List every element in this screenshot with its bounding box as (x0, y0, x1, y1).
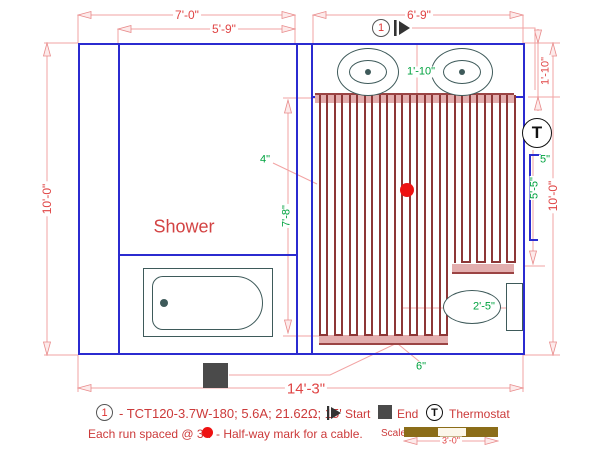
wall-partition-outer (296, 43, 298, 355)
legend-thermostat-label: Thermostat (449, 408, 510, 420)
cable-run (364, 95, 366, 336)
note-edge-gap: 4" (259, 155, 271, 166)
cable-run (491, 95, 493, 263)
wall-top (78, 43, 525, 45)
scale-bar-segment (466, 428, 497, 436)
sink-left-drain (365, 69, 371, 75)
cable-run (499, 95, 501, 263)
legend-halfway-dot-icon (202, 427, 213, 438)
wall-shower-left (118, 43, 120, 355)
wall-right (523, 43, 525, 355)
circuit-number-marker: 1 (372, 19, 390, 37)
bathtub-drain (160, 299, 168, 307)
cable-run (386, 95, 388, 336)
cable-run (506, 95, 508, 263)
thermostat-marker: T (522, 118, 552, 148)
note-bottom-gap: 6" (415, 362, 427, 373)
dim-right-top: 1'-10" (541, 55, 552, 87)
cable-run (379, 95, 381, 336)
wall-partition-inner (311, 43, 313, 355)
cable-run (319, 95, 321, 336)
legend-start-icon (327, 406, 342, 420)
scale-bar-segment (405, 428, 438, 436)
cable-run (469, 95, 471, 263)
note-right-edge-gap: 5" (539, 155, 551, 166)
cable-run (439, 95, 441, 336)
cable-run (454, 95, 456, 263)
cable-run (484, 95, 486, 263)
cable-run (476, 95, 478, 263)
cable-run (409, 95, 411, 336)
cable-run (461, 95, 463, 263)
note-toilet-clearance: 2'-5" (472, 302, 496, 313)
legend-spec: - TCT120-3.7W-180; 5.6A; 21.62Ω; 15' (119, 407, 342, 420)
cable-run (349, 95, 351, 336)
circuit-number: 1 (378, 22, 384, 34)
sink-right-drain (459, 69, 465, 75)
room-label-shower: Shower (153, 217, 214, 238)
legend-circuit-marker: 1 (96, 404, 113, 421)
thermostat-letter: T (532, 123, 542, 143)
dim-bottom: 14'-3" (285, 382, 327, 397)
cable-run (431, 95, 433, 336)
legend-thermostat-icon: T (426, 404, 443, 421)
wall-shower-divider (118, 254, 298, 256)
halfway-mark-dot (400, 183, 414, 197)
legend-spacing-note: Each run spaced @ 3". (88, 428, 211, 440)
dim-top-right: 6'-9" (405, 9, 433, 21)
cable-run (416, 95, 418, 336)
cable-run (514, 95, 516, 263)
note-mat-height: 7'-8" (282, 204, 293, 228)
cable-run (356, 95, 358, 336)
dim-left-height: 10'-0" (41, 182, 53, 217)
legend-circuit-number: 1 (101, 407, 107, 419)
wall-bottom (78, 353, 525, 355)
legend-end-label: End (397, 408, 418, 420)
legend-end-icon (378, 405, 392, 419)
legend-thermostat-letter: T (431, 407, 438, 419)
note-right-mat-height: 5'-5" (530, 176, 541, 200)
cable-run (371, 95, 373, 336)
dim-right-height: 10'-0" (547, 179, 559, 214)
toilet-tank (506, 283, 523, 331)
cable-band-bottom-right (452, 264, 514, 274)
dim-top-left-inner: 5'-9" (210, 23, 238, 35)
cable-run (394, 95, 396, 336)
scale-length: 3'-0" (440, 437, 462, 446)
note-sink-gap: 1'-10" (406, 67, 436, 78)
cable-run (326, 95, 328, 336)
floor-plan-drawing: 1 T 7'-0" 5'-9" 6'-9" 14'-3" 10'-0" 10'-… (0, 0, 600, 450)
cable-run (424, 95, 426, 336)
end-marker (203, 363, 228, 388)
legend-start-label: Start (345, 408, 370, 420)
cable-run (401, 95, 403, 336)
scale-label: Scale (381, 429, 406, 439)
cable-band-bottom-main (319, 335, 448, 345)
wall-left (78, 43, 80, 355)
cable-run (341, 95, 343, 336)
legend-halfway-note: - Half-way mark for a cable. (216, 428, 363, 440)
bathtub-inner (152, 276, 263, 330)
cable-run (334, 95, 336, 336)
dim-top-left: 7'-0" (173, 9, 201, 21)
